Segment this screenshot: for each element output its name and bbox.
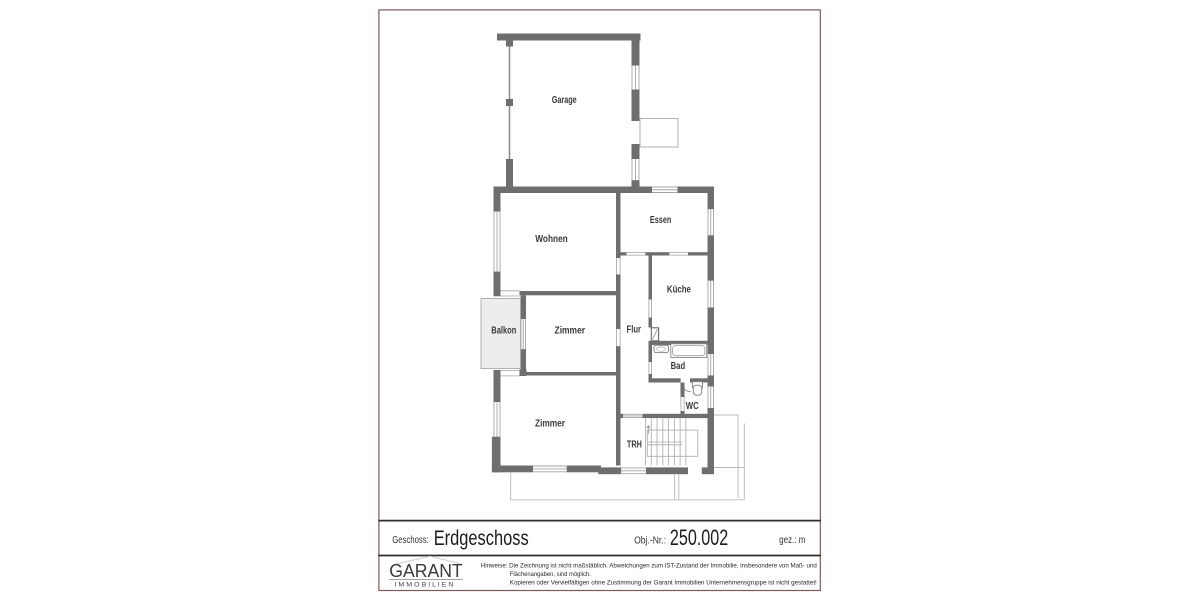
svg-text:Zimmer: Zimmer [535,419,565,430]
svg-text:Erdgeschoss: Erdgeschoss [434,526,529,550]
svg-text:GARANT: GARANT [389,560,462,581]
svg-text:Kopieren oder Vervielfältigen: Kopieren oder Vervielfältigen ohne Zusti… [510,579,817,586]
svg-text:Wohnen: Wohnen [535,234,568,245]
svg-text:Flur: Flur [627,325,642,336]
svg-text:WC: WC [686,401,699,412]
svg-text:TRH: TRH [627,439,642,450]
svg-text:Balkon: Balkon [491,325,516,336]
svg-text:Geschoss:: Geschoss: [392,534,429,546]
svg-text:Essen: Essen [650,215,672,226]
svg-text:Küche: Küche [667,284,691,295]
svg-text:gez.: m: gez.: m [779,534,806,546]
svg-text:Hinweise: Die Zeichnung ist ni: Hinweise: Die Zeichnung ist nicht maßstä… [481,562,818,569]
svg-text:Flächenangaben, sind möglich.: Flächenangaben, sind möglich. [510,571,591,578]
svg-text:I M M O B I L I E N: I M M O B I L I E N [395,581,454,588]
svg-text:Obj.-Nr.:: Obj.-Nr.: [634,535,666,547]
svg-text:Bad: Bad [671,361,686,372]
svg-text:Garage: Garage [552,95,577,106]
svg-text:250.002: 250.002 [670,525,728,550]
svg-text:Zimmer: Zimmer [555,326,586,337]
